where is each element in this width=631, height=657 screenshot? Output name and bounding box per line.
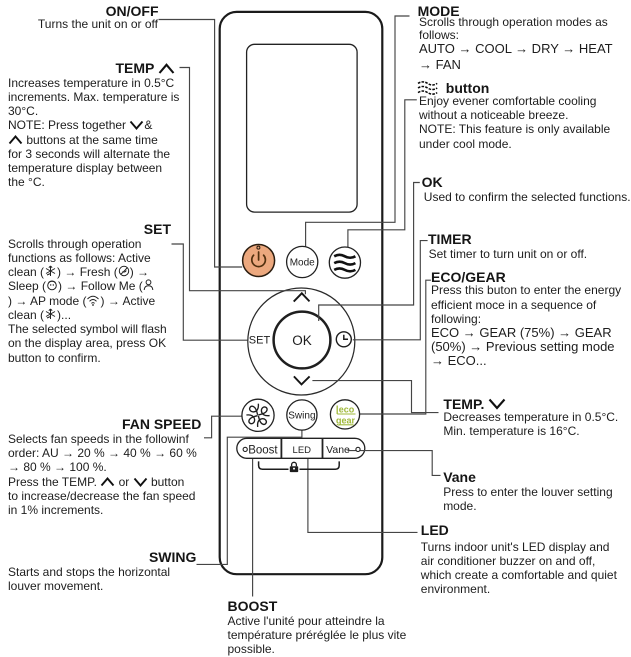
svg-text:Vane: Vane bbox=[326, 444, 350, 456]
svg-text:LED: LED bbox=[293, 445, 312, 456]
svg-text:OK: OK bbox=[292, 333, 312, 348]
svg-text:Swing: Swing bbox=[288, 410, 315, 421]
svg-text:gear: gear bbox=[336, 416, 356, 426]
svg-text:eco: eco bbox=[339, 405, 355, 415]
svg-text:SET: SET bbox=[249, 335, 271, 347]
svg-text:Mode: Mode bbox=[290, 258, 315, 269]
svg-text:Boost: Boost bbox=[248, 444, 278, 456]
